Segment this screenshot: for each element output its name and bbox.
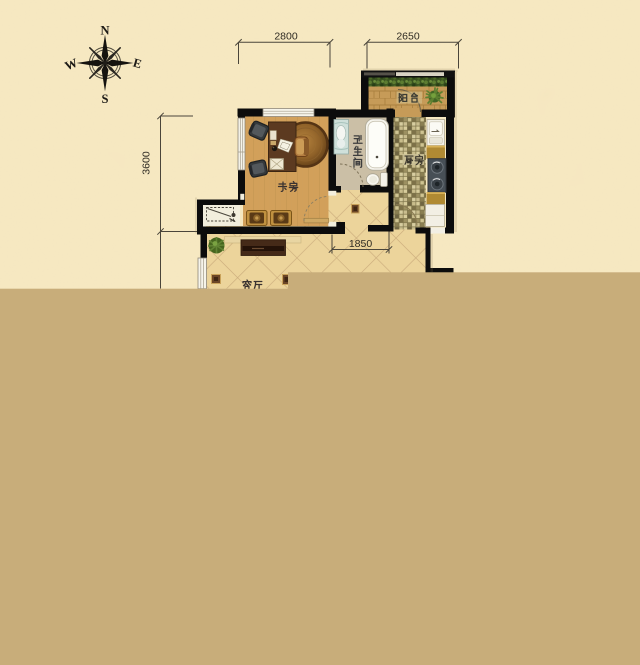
- svg-text:3600: 3600: [141, 151, 153, 175]
- svg-text:N: N: [100, 24, 109, 38]
- svg-text:2800: 2800: [274, 31, 298, 43]
- svg-text:1850: 1850: [349, 238, 373, 250]
- svg-text:S: S: [102, 92, 109, 106]
- svg-text:2650: 2650: [396, 31, 420, 43]
